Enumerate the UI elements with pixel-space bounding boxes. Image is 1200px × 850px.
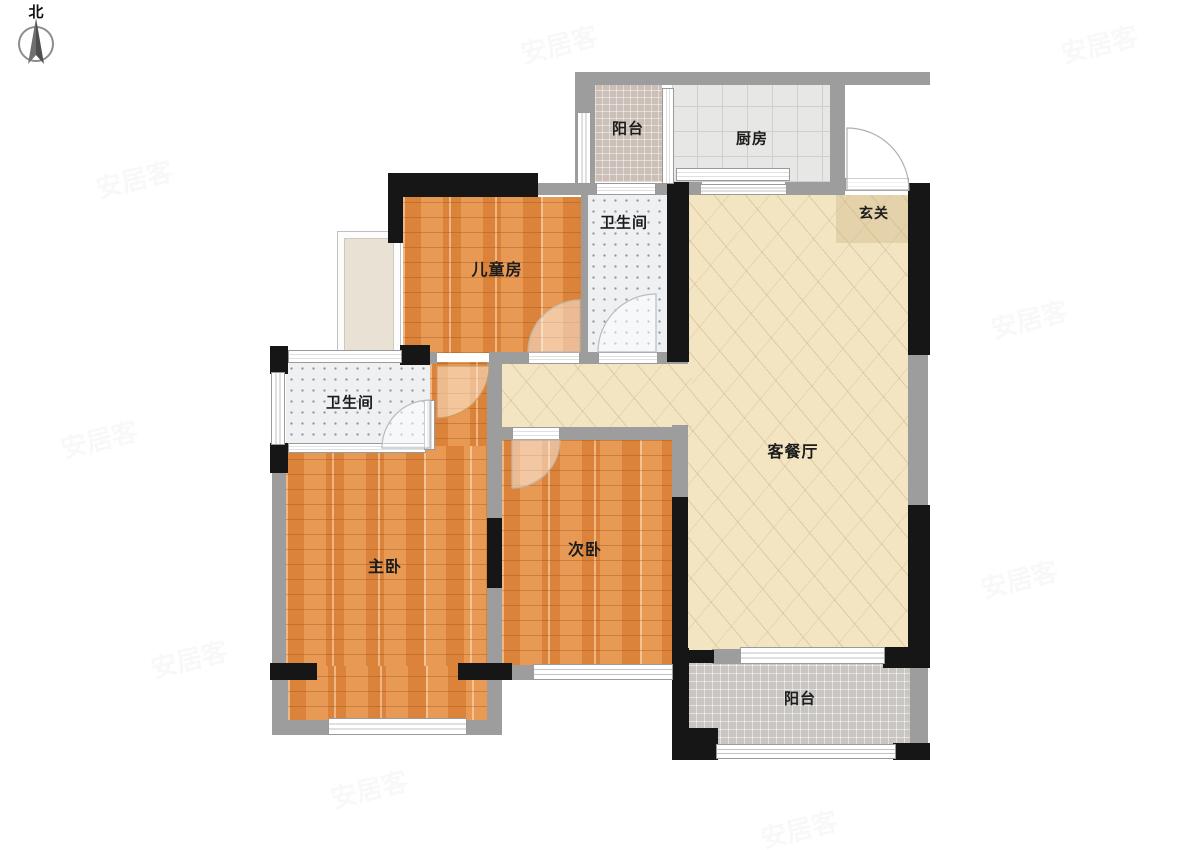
window [288,443,426,453]
watermark: 安居客 [327,761,412,816]
wall [910,668,928,748]
window [676,168,790,181]
watermark: 安居客 [757,801,842,850]
window [716,744,896,759]
wall [883,647,930,668]
wall [270,663,317,680]
watermark: 安居客 [517,16,602,71]
door-sill [598,352,658,364]
door-leaf [512,427,560,440]
wall [908,355,928,505]
utility-shaft [338,232,400,357]
wall [487,586,502,665]
window [533,664,673,680]
wall [908,505,930,650]
wall [270,443,288,473]
wall [908,183,930,355]
watermark: 安居客 [57,411,142,466]
living-floor [688,195,910,650]
wall [388,173,403,243]
window [740,647,885,664]
wall [712,649,742,664]
door-sill [528,352,580,364]
door-leaf [424,400,435,450]
window [596,183,656,195]
watermark: 安居客 [92,151,177,206]
wall [270,346,288,374]
wall [489,352,688,364]
master-bedroom-label: 主卧 [368,553,402,577]
floorplan-canvas: 阳台 厨房 玄关 卫生间 儿童房 客餐厅 卫生间 主卧 次卧 阳台 北 安居客 … [0,0,1200,850]
wall [487,362,502,442]
wall [272,471,286,665]
window [328,718,467,735]
window [662,88,674,184]
hallway-floor [430,362,488,454]
wall [672,425,688,499]
wall [830,85,845,195]
wall [667,182,689,362]
wall [388,173,538,197]
watermark: 安居客 [147,631,232,686]
wall [893,743,930,760]
window [288,350,402,363]
window [577,112,591,184]
bath-top-label: 卫生间 [600,212,648,233]
wall [688,650,714,663]
second-bedroom-label: 次卧 [568,536,602,560]
wall [785,182,845,195]
wall [512,665,533,680]
wall [487,518,502,588]
wall [674,728,718,760]
wall [533,183,598,195]
living-dining-label: 客餐厅 [767,438,818,462]
wall [575,72,930,85]
door-leaf [845,178,909,191]
balcony-top-label: 阳台 [612,118,644,139]
corridor-floor [502,362,692,428]
watermark: 安居客 [987,291,1072,346]
wall [400,345,430,365]
entry-label: 玄关 [859,203,889,223]
wall [458,663,512,680]
wall [581,183,588,353]
balcony-bottom-label: 阳台 [784,688,816,709]
kitchen-label: 厨房 [736,128,768,149]
compass-north-icon: 北 [8,2,64,70]
watermark: 安居客 [977,551,1062,606]
window [700,184,787,195]
watermark: 安居客 [1057,16,1142,71]
wall [672,497,688,652]
children-room-label: 儿童房 [471,256,522,280]
window [271,372,285,445]
bath-left-label: 卫生间 [326,392,374,413]
wall [487,440,502,522]
